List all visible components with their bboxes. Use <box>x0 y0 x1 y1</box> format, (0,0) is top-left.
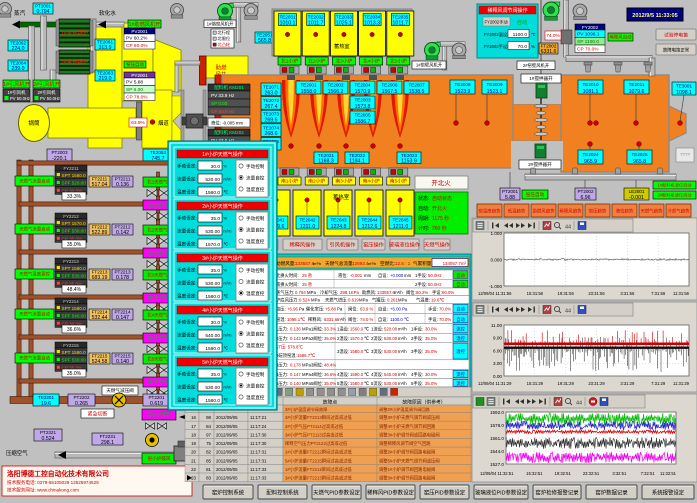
svg-text:℃: ℃ <box>224 346 229 351</box>
svg-text:532.44: 532.44 <box>92 315 108 321</box>
svg-text:LE2001: LE2001 <box>629 189 645 194</box>
svg-text:133557.6: 133557.6 <box>377 290 396 295</box>
svg-text:0.147: 0.147 <box>290 372 301 377</box>
svg-text:北换火时间:: 北换火时间: <box>276 272 299 279</box>
svg-text:SP 1100.0: SP 1100.0 <box>577 39 599 45</box>
svg-text:2012/9/5 11:33:05: 2012/9/5 11:33:05 <box>632 13 677 19</box>
svg-text:520.00: 520.00 <box>384 327 398 332</box>
svg-text:CP 70.0%: CP 70.0% <box>577 47 599 53</box>
svg-text:流量自控: 流量自控 <box>246 227 265 234</box>
svg-text:PV2001: PV2001 <box>131 29 148 34</box>
svg-text:1523.9: 1523.9 <box>455 89 471 95</box>
svg-text:522.89: 522.89 <box>92 230 108 236</box>
svg-text:TE2035: TE2035 <box>392 15 409 20</box>
svg-text:1567.5: 1567.5 <box>382 89 398 95</box>
svg-text:自设:: 自设: <box>378 306 388 313</box>
svg-text:手动控制: 手动控制 <box>246 371 265 378</box>
svg-text:2#小炉流量FT2212瞬间过高或过低: 2#小炉流量FT2212瞬间过高或过低 <box>285 449 353 456</box>
svg-text:35.0%: 35.0% <box>324 381 336 386</box>
svg-text:PT2002: PT2002 <box>577 189 594 194</box>
svg-text:12/09/04 11:31:56: 12/09/04 11:31:56 <box>478 291 512 296</box>
svg-text:84: 84 <box>206 424 211 429</box>
svg-text:TE2024: TE2024 <box>582 152 599 157</box>
svg-text:Pa: Pa <box>337 307 343 312</box>
svg-text:手动控制: 手动控制 <box>246 319 265 326</box>
svg-text:自动状态: 自动状态 <box>432 195 452 202</box>
svg-text:44: 44 <box>565 225 571 231</box>
svg-text:0.524: 0.524 <box>299 298 310 303</box>
svg-text:自动: 自动 <box>456 306 465 313</box>
svg-text:窑炉数据记录: 窑炉数据记录 <box>595 488 628 496</box>
svg-text:PV 50.0Hz: PV 50.0Hz <box>40 96 60 101</box>
svg-text:温度直控: 温度直控 <box>246 394 265 401</box>
svg-text:SPF 530.00: SPF 530.00 <box>62 229 87 234</box>
svg-text:FY2211: FY2211 <box>63 166 79 171</box>
svg-text:手设:: 手设: <box>428 316 438 323</box>
svg-text:m³/h: m³/h <box>224 281 232 286</box>
svg-text:%: % <box>224 268 228 273</box>
svg-text:3#小炉气压PT2113过高或过低: 3#小炉气压PT2113过高或过低 <box>285 431 344 438</box>
svg-text:11:17:24: 11:17:24 <box>250 424 267 429</box>
svg-text:2012/09/05: 2012/09/05 <box>216 441 238 446</box>
svg-text:调整3#小炉温度调节阀回路: 调整3#小炉温度调节阀回路 <box>379 406 431 413</box>
svg-text:℃: ℃ <box>364 381 369 386</box>
svg-text:SPT 1570.0: SPT 1570.0 <box>62 221 87 226</box>
svg-text:技术服务网址: www.chinakong.com: 技术服务网址: www.chinakong.com <box>7 487 79 494</box>
svg-text:1184.1: 1184.1 <box>349 158 365 164</box>
svg-text:6331.6: 6331.6 <box>324 317 338 322</box>
svg-text:1压力:: 1压力: <box>276 326 288 333</box>
svg-text:手设:: 手设: <box>432 289 442 296</box>
svg-text:1#余热锅炉: 1#余热锅炉 <box>61 29 89 37</box>
svg-text:南3小炉: 南3小炉 <box>335 178 352 185</box>
svg-text:北4小炉: 北4小炉 <box>363 58 380 65</box>
svg-text:TE2005: TE2005 <box>354 113 371 118</box>
svg-text:1153.9: 1153.9 <box>401 158 417 164</box>
svg-text:3阀位:: 3阀位: <box>311 362 323 369</box>
svg-text:1#引风机开: 1#引风机开 <box>3 80 30 88</box>
svg-text:蓄热室: 蓄热室 <box>333 193 350 201</box>
svg-text:℃: ℃ <box>224 190 229 195</box>
svg-text:1081.1: 1081.1 <box>583 89 599 95</box>
svg-text:683.19: 683.19 <box>92 275 108 281</box>
svg-text:5#小炉流量FT2215瞬间过高或过低: 5#小炉流量FT2215瞬间过高或过低 <box>285 457 353 464</box>
svg-text:3.00: 3.00 <box>493 361 502 366</box>
svg-text:TE2021: TE2021 <box>318 153 335 158</box>
svg-text:TE2042: TE2042 <box>299 218 316 223</box>
svg-text:天燃气流量自动: 天燃气流量自动 <box>19 355 50 362</box>
svg-text:3#小炉流量FT2213瞬间过高或过低: 3#小炉流量FT2213瞬间过高或过低 <box>285 414 353 421</box>
svg-text:1578.0: 1578.0 <box>490 423 504 428</box>
svg-text:温度设定:: 温度设定: <box>177 241 197 248</box>
svg-text:气罐压:: 气罐压: <box>372 297 386 304</box>
svg-text:m³/h: m³/h <box>398 372 407 377</box>
svg-text:19.6: 19.6 <box>41 401 51 407</box>
svg-text:m³/h: m³/h <box>368 261 376 266</box>
svg-text:手动控制: 手动控制 <box>246 215 265 222</box>
svg-text:天燃气流量自动: 天燃气流量自动 <box>19 178 50 185</box>
svg-text:1580.0: 1580.0 <box>350 381 364 386</box>
svg-text:FT2231: FT2231 <box>100 434 116 439</box>
svg-text:天燃气操作: 天燃气操作 <box>424 241 450 249</box>
svg-text:35.0%: 35.0% <box>67 242 82 248</box>
svg-text:540.00: 540.00 <box>384 372 398 377</box>
svg-text:1573.8: 1573.8 <box>355 104 371 110</box>
svg-text:1温设:: 1温设: <box>337 326 349 333</box>
svg-text:FY2214: FY2214 <box>63 299 79 304</box>
svg-text:1025.1: 1025.1 <box>336 20 352 26</box>
svg-text:北限位: 北限位 <box>218 35 231 42</box>
svg-text:系统报警设定: 系统报警设定 <box>652 488 685 496</box>
svg-text:1#窑壁风机开: 1#窑壁风机开 <box>416 62 443 69</box>
svg-text:洛阳博德工控自动化技术有限公司: 洛阳博德工控自动化技术有限公司 <box>7 469 109 478</box>
svg-text:4流设:: 4流设: <box>371 371 383 378</box>
svg-text:11:17:30: 11:17:30 <box>250 441 267 446</box>
svg-text:15:31:56: 15:31:56 <box>527 291 544 296</box>
svg-text:℃: ℃ <box>224 398 229 403</box>
svg-text:冷却气压:: 冷却气压: <box>320 289 338 296</box>
svg-text:35.0%: 35.0% <box>425 336 437 341</box>
svg-text:液位: -0.005 mm: 液位: -0.005 mm <box>211 119 244 126</box>
svg-text:温控: 温控 <box>456 348 465 355</box>
svg-text:%: % <box>224 164 228 169</box>
svg-text:流控: 流控 <box>456 371 465 378</box>
svg-text:313.9: 313.9 <box>99 45 112 51</box>
svg-text:玻璃液位操作: 玻璃液位操作 <box>389 241 420 249</box>
svg-text:267.4: 267.4 <box>265 104 278 110</box>
svg-text:11:17:33: 11:17:33 <box>250 476 267 481</box>
svg-text:m³/h: m³/h <box>398 327 407 332</box>
svg-text:0.000: 0.000 <box>491 257 503 262</box>
svg-text:0.142: 0.142 <box>290 336 301 341</box>
svg-text:%: % <box>531 44 535 49</box>
svg-text:3#小炉温度调节阀故障: 3#小炉温度调节阀故障 <box>285 406 327 413</box>
svg-text:35.0%: 35.0% <box>425 349 437 354</box>
svg-text:224.0: 224.0 <box>12 46 25 52</box>
svg-text:30.0: 30.0 <box>211 164 221 170</box>
svg-text:流量自控: 流量自控 <box>246 175 265 182</box>
svg-text:3碹顶窑温:: 3碹顶窑温: <box>276 352 297 359</box>
svg-text:TE2004: TE2004 <box>354 83 371 88</box>
svg-text:+0.000: +0.000 <box>390 273 404 278</box>
svg-text:PT2001: PT2001 <box>502 189 519 194</box>
svg-text:TE2002: TE2002 <box>327 83 344 88</box>
svg-text:故障原因（供参考）: 故障原因（供参考） <box>402 398 445 405</box>
svg-text:22: 22 <box>191 467 196 472</box>
svg-text:0.00: 0.00 <box>493 374 502 379</box>
svg-text:33.3%: 33.3% <box>324 327 336 332</box>
svg-text:窑温度趋势: 窑温度趋势 <box>479 208 502 215</box>
svg-text:50.0Hz: 50.0Hz <box>428 273 442 278</box>
svg-text:60.2%: 60.2% <box>416 290 428 295</box>
svg-text:1224.8: 1224.8 <box>331 224 347 230</box>
svg-text:30.0%: 30.0% <box>425 327 437 332</box>
svg-text:稀释空气压力PT2122过高或过低: 稀释空气压力PT2122过高或过低 <box>285 440 348 447</box>
svg-text:19.6℃: 19.6℃ <box>431 298 444 303</box>
svg-text:配料机 KM201: 配料机 KM201 <box>214 84 244 91</box>
svg-text:气温度:: 气温度: <box>416 297 430 304</box>
svg-text:4阀位:: 4阀位: <box>311 371 323 378</box>
svg-text:天燃气流量自动: 天燃气流量自动 <box>19 311 50 318</box>
svg-text:蒸汽: 蒸汽 <box>14 9 26 17</box>
svg-text:2012/09/05: 2012/09/05 <box>216 458 238 463</box>
svg-text:稀释风自动: 稀释风自动 <box>610 34 633 41</box>
svg-text:-0.001: -0.001 <box>629 195 644 201</box>
svg-text:天燃气趋势: 天燃气趋势 <box>641 208 664 215</box>
svg-text:蓄热室: 蓄热室 <box>334 42 350 50</box>
svg-text:自动:: 自动: <box>418 205 429 212</box>
svg-text:PV 1098.1: PV 1098.1 <box>577 32 600 38</box>
svg-text:1592.0: 1592.0 <box>490 410 504 415</box>
svg-text:134057.7m³: 134057.7m³ <box>443 261 467 266</box>
svg-text:35.0%: 35.0% <box>425 381 437 386</box>
svg-text:稀释风:: 稀释风: <box>308 316 322 323</box>
svg-text:1580.0: 1580.0 <box>350 349 364 354</box>
svg-text:TE2032: TE2032 <box>308 15 325 20</box>
svg-text:1011.7: 1011.7 <box>393 20 409 26</box>
svg-text:PV 5.88: PV 5.88 <box>126 80 143 86</box>
svg-text:PT2202: PT2202 <box>73 395 90 400</box>
svg-text:25 秒: 25 秒 <box>302 272 313 279</box>
svg-text:自设:: 自设: <box>378 316 388 323</box>
svg-text:298.1: 298.1 <box>101 440 114 446</box>
svg-text:+6.96: +6.96 <box>287 307 298 312</box>
svg-text:自动: 自动 <box>456 272 465 279</box>
svg-text:1570.9: 1570.9 <box>355 89 371 95</box>
svg-text:2012/09/05: 2012/09/05 <box>216 467 238 472</box>
svg-text:TE2003: TE2003 <box>354 98 371 103</box>
svg-text:2流设:: 2流设: <box>371 335 383 342</box>
svg-text:TE2201: TE2201 <box>38 395 55 400</box>
svg-text:北3小炉: 北3小炉 <box>335 58 352 65</box>
svg-text:m³/h: m³/h <box>394 290 403 295</box>
svg-text:1586.7℃: 1586.7℃ <box>297 353 315 358</box>
svg-text:5阀位:: 5阀位: <box>311 380 323 387</box>
svg-text:FY2002手动: FY2002手动 <box>484 18 507 25</box>
svg-text:1527.0: 1527.0 <box>490 462 504 467</box>
svg-text:2012/09/05: 2012/09/05 <box>216 450 238 455</box>
svg-text:℃: ℃ <box>224 294 229 299</box>
svg-text:调整2#小炉调节阀回路电磁阀: 调整2#小炉调节阀回路电磁阀 <box>379 449 435 456</box>
svg-text:窑压趋势: 窑压趋势 <box>589 208 607 215</box>
svg-text:5.88: 5.88 <box>505 195 515 201</box>
svg-text:6.96: 6.96 <box>580 195 590 201</box>
svg-text:SPF 520.00: SPF 520.00 <box>62 181 87 186</box>
svg-text:2#配料机液位自动: 2#配料机液位自动 <box>658 192 692 199</box>
svg-text:调整1#小炉调节阀回路电磁阀: 调整1#小炉调节阀回路电磁阀 <box>379 466 435 473</box>
svg-text:m³/h: m³/h <box>224 333 232 338</box>
svg-text:4#小炉气压PT2114过高或过低: 4#小炉气压PT2114过高或过低 <box>285 423 344 430</box>
svg-text:TE2022: TE2022 <box>349 153 366 158</box>
svg-text:11:17:31: 11:17:31 <box>250 450 267 455</box>
svg-text:调整4#小炉天燃气调节阀回路: 调整4#小炉天燃气调节阀回路 <box>379 423 436 430</box>
svg-text:565.8: 565.8 <box>258 38 271 44</box>
svg-text:19:32:51: 19:32:51 <box>555 471 572 476</box>
svg-text:℃: ℃ <box>364 336 369 341</box>
svg-text:窑炉检修报警记录: 窑炉检修报警记录 <box>535 488 579 496</box>
svg-text:3压力:: 3压力: <box>276 362 288 369</box>
svg-text:TE2053: TE2053 <box>150 150 167 155</box>
svg-text:m³/h: m³/h <box>398 349 407 354</box>
svg-text:温度直控: 温度直控 <box>246 342 265 349</box>
svg-text:7:32:51: 7:32:51 <box>641 471 656 476</box>
svg-text:12693.4: 12693.4 <box>352 261 369 266</box>
svg-text:4手设:: 4手设: <box>411 371 423 378</box>
svg-text:CP 60.0%: CP 60.0% <box>126 43 148 49</box>
svg-text:70.0%: 70.0% <box>439 317 451 322</box>
svg-text:TE2009: TE2009 <box>486 82 503 87</box>
svg-text:手动设定:: 手动设定: <box>177 319 197 326</box>
svg-text:℃: ℃ <box>224 242 229 247</box>
svg-text:配料控制系统: 配料控制系统 <box>266 488 299 496</box>
svg-text:北5小炉: 北5小炉 <box>390 58 407 65</box>
svg-text:紧急切断: 紧急切断 <box>87 410 107 417</box>
svg-text:稀释风趋势: 稀释风趋势 <box>560 208 583 215</box>
svg-text:269.6: 269.6 <box>265 118 278 124</box>
svg-text:5流设:: 5流设: <box>371 380 383 387</box>
svg-text:2012/09/05: 2012/09/05 <box>216 424 238 429</box>
svg-text:81: 81 <box>206 467 211 472</box>
svg-text:SP 6.00: SP 6.00 <box>126 87 143 93</box>
svg-text:1098.1: 1098.1 <box>676 90 692 96</box>
svg-text:1#小炉天燃气操作: 1#小炉天燃气操作 <box>202 151 243 158</box>
svg-text:SPF 540.00: SPF 540.00 <box>62 314 87 319</box>
svg-text:m³/h: m³/h <box>398 381 407 386</box>
svg-text:技术服务电话: 0379-65105029 1352597: 技术服务电话: 0379-65105029 13525974529 <box>7 479 99 486</box>
svg-text:天燃气温度直控: 天燃气温度直控 <box>19 271 50 278</box>
svg-text:m³/h: m³/h <box>224 177 232 182</box>
svg-text:2手设:: 2手设: <box>415 281 427 288</box>
svg-text:温度直控: 温度直控 <box>246 186 265 193</box>
svg-text:开北火: 开北火 <box>431 179 451 187</box>
svg-text:流量设定:: 流量设定: <box>177 384 197 391</box>
svg-text:11:17:33: 11:17:33 <box>250 467 267 472</box>
svg-text:1212.6: 1212.6 <box>362 224 378 230</box>
svg-text:0.147: 0.147 <box>116 315 129 321</box>
svg-text:流控: 流控 <box>456 326 465 333</box>
svg-text:CP 78.0%: CP 78.0% <box>126 95 148 101</box>
svg-text:23:31:29: 23:31:29 <box>588 381 605 386</box>
svg-text:TE2025: TE2025 <box>631 152 648 157</box>
svg-text:SPF 530.00: SPF 530.00 <box>62 274 87 279</box>
svg-text:调整稀释风调节阀空气回路: 调整稀释风调节阀空气回路 <box>379 440 431 447</box>
svg-text:℃: ℃ <box>364 327 369 332</box>
svg-text:周期:: 周期: <box>418 216 429 222</box>
svg-text:17: 17 <box>191 424 196 429</box>
svg-text:开北火: 开北火 <box>432 205 447 212</box>
svg-text:TE3001: TE3001 <box>676 84 693 89</box>
svg-text:助燃风趋势: 助燃风趋势 <box>533 208 556 215</box>
svg-text:6331.6: 6331.6 <box>541 49 557 55</box>
svg-text:1580.0: 1580.0 <box>205 398 220 404</box>
svg-text:0.265: 0.265 <box>75 401 88 407</box>
svg-text:南2小炉: 南2小炉 <box>308 178 325 185</box>
svg-text:FY2213: FY2213 <box>63 259 79 264</box>
svg-text:2压力:: 2压力: <box>276 335 288 342</box>
svg-text:稀释风调节阀操作: 稀释风调节阀操作 <box>487 7 527 14</box>
svg-text:温度设定:: 温度设定: <box>177 345 197 352</box>
svg-text:流量自控: 流量自控 <box>246 383 265 390</box>
svg-text:19: 19 <box>191 441 196 446</box>
svg-text:m³/h: m³/h <box>398 336 407 341</box>
svg-text:1手设:: 1手设: <box>411 326 423 333</box>
svg-text:m³/h: m³/h <box>313 261 321 266</box>
svg-text:TE2011: TE2011 <box>629 82 645 87</box>
svg-text:TE2031: TE2031 <box>279 15 296 20</box>
svg-text:手动控制: 手动控制 <box>246 163 265 170</box>
svg-text:手动设定:: 手动设定: <box>177 215 197 222</box>
svg-text:19:31:56: 19:31:56 <box>558 291 575 296</box>
svg-text:2#窑壁风机开: 2#窑壁风机开 <box>523 62 550 69</box>
svg-text:35.0: 35.0 <box>211 372 221 378</box>
svg-text:0.136: 0.136 <box>116 182 129 188</box>
svg-text:2#引风机开: 2#引风机开 <box>33 80 60 88</box>
svg-text:540.00: 540.00 <box>205 333 220 339</box>
svg-text:3:32:51: 3:32:51 <box>612 471 627 476</box>
svg-text:30.0%: 30.0% <box>425 372 437 377</box>
svg-text:FY2215: FY2215 <box>63 343 79 348</box>
svg-text:助燃风量:: 助燃风量: <box>276 260 296 267</box>
svg-text:SPT 1580.0: SPT 1580.0 <box>62 350 87 355</box>
svg-text:1523.1: 1523.1 <box>487 89 503 95</box>
svg-text:11:32:51: 11:32:51 <box>660 471 677 476</box>
svg-text:74.0%: 74.0% <box>546 33 560 39</box>
svg-text:TE2033: TE2033 <box>336 15 353 20</box>
svg-text:11:31:56: 11:31:56 <box>673 291 690 296</box>
svg-text:m³/h: m³/h <box>224 229 232 234</box>
svg-text:0.140: 0.140 <box>290 381 301 386</box>
svg-text:1.000: 1.000 <box>491 231 503 236</box>
svg-text:℃: ℃ <box>364 372 369 377</box>
svg-text:TE2072: TE2072 <box>263 98 280 103</box>
svg-text:965.9: 965.9 <box>584 159 597 165</box>
svg-text:阀位:: 阀位: <box>406 289 416 296</box>
svg-text:530.00: 530.00 <box>205 229 220 235</box>
svg-text:1100.0 ℃: 1100.0 ℃ <box>390 317 409 322</box>
svg-text:2#小炉天燃气操作: 2#小炉天燃气操作 <box>202 203 243 210</box>
svg-text:21: 21 <box>191 458 196 463</box>
svg-text:计时:: 计时: <box>418 225 429 232</box>
svg-text:1#小炉流量FT2211瞬间过高或过低: 1#小炉流量FT2211瞬间过高或过低 <box>285 466 352 473</box>
svg-text:mm: mm <box>404 273 412 278</box>
svg-text:℃: ℃ <box>531 32 536 37</box>
svg-text:1211.0: 1211.0 <box>393 224 409 230</box>
svg-text:16: 16 <box>191 415 196 420</box>
svg-text:48.4%: 48.4% <box>324 363 336 368</box>
svg-text:0.178: 0.178 <box>290 363 301 368</box>
svg-text:18: 18 <box>191 432 196 437</box>
svg-text:北1小炉: 北1小炉 <box>281 58 298 65</box>
svg-text:2阀位:: 2阀位: <box>311 335 323 342</box>
svg-text:FY2002: FY2002 <box>582 25 599 30</box>
svg-text:手设:: 手设: <box>428 306 438 313</box>
svg-text:2温设:: 2温设: <box>337 335 349 342</box>
svg-text:298.1KPa: 298.1KPa <box>340 290 359 295</box>
svg-text:23: 23 <box>191 476 196 481</box>
svg-text:219.0: 219.0 <box>99 76 112 82</box>
svg-text:调整3#小炉天燃气调节阀或压阀: 调整3#小炉天燃气调节阀或压阀 <box>379 414 440 421</box>
svg-text:2012/09/05: 2012/09/05 <box>216 415 238 420</box>
svg-text:调整5#小炉天燃气调节阀或压阀: 调整5#小炉天燃气调节阀或压阀 <box>379 457 440 464</box>
svg-text:MPa: MPa <box>307 290 316 295</box>
svg-text:流量设定:: 流量设定: <box>177 176 197 183</box>
svg-text:SPT 1580.0: SPT 1580.0 <box>62 306 87 311</box>
svg-text:助燃风:: 助燃风: <box>362 289 376 296</box>
svg-text:1手设:: 1手设: <box>415 272 427 279</box>
svg-text:炉底风压力:: 炉底风压力: <box>276 297 299 304</box>
svg-text:温度直控: 温度直控 <box>246 238 265 245</box>
svg-text:低温趋势: 低温趋势 <box>508 208 526 215</box>
